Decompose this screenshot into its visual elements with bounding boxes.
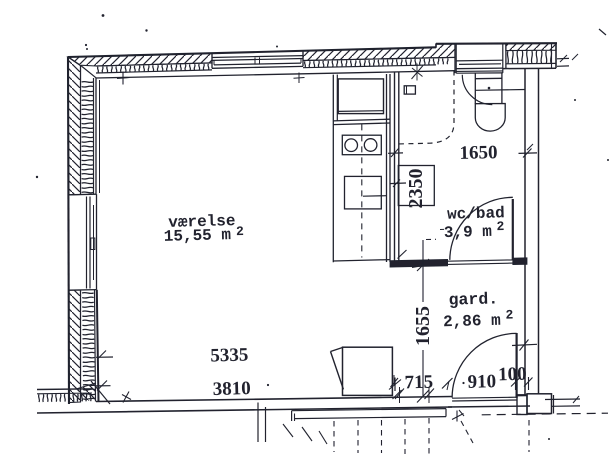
svg-text:2350: 2350 <box>405 169 427 209</box>
svg-text:1655: 1655 <box>412 306 434 346</box>
svg-text:3810: 3810 <box>212 378 251 400</box>
svg-text:1650: 1650 <box>459 142 497 164</box>
svg-text:3,9 m: 3,9 m <box>444 223 493 242</box>
svg-text:910: 910 <box>467 371 496 393</box>
svg-text:5335: 5335 <box>210 345 249 367</box>
svg-text:2: 2 <box>236 224 244 239</box>
svg-text:2: 2 <box>505 307 513 322</box>
svg-text:2,86 m: 2,86 m <box>443 312 501 332</box>
svg-text:100: 100 <box>498 364 527 386</box>
svg-text:gard.: gard. <box>448 289 498 309</box>
svg-text:2: 2 <box>496 219 504 234</box>
svg-text:15,55 m: 15,55 m <box>164 226 232 246</box>
